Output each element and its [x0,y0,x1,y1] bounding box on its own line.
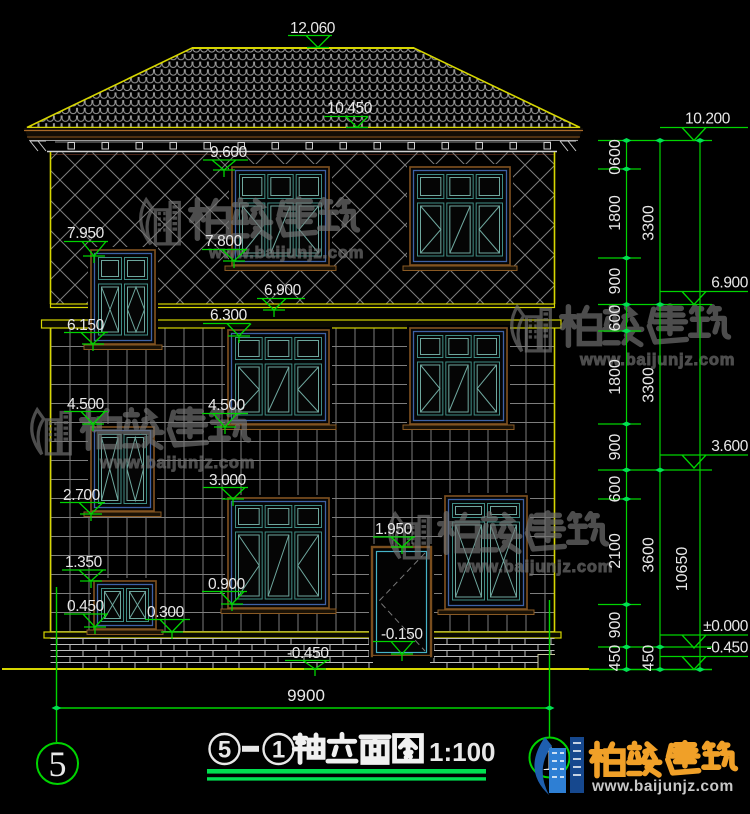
svg-text:www.baijunjz.com: www.baijunjz.com [99,454,255,472]
svg-text:12.060: 12.060 [290,20,336,37]
svg-text:5: 5 [218,737,231,764]
svg-text:600: 600 [607,476,624,503]
svg-text:900: 900 [607,612,624,639]
svg-text:4.500: 4.500 [208,397,246,414]
svg-text:10650: 10650 [674,547,691,592]
svg-text:450: 450 [607,645,624,672]
svg-text:9900: 9900 [287,686,325,705]
svg-text:1: 1 [272,737,285,764]
svg-text:450: 450 [641,645,658,672]
svg-text:3300: 3300 [641,205,658,241]
svg-text:3300: 3300 [641,367,658,403]
svg-text:10.450: 10.450 [327,100,373,117]
svg-text:2.700: 2.700 [63,487,101,504]
svg-text:www.baijunjz.com: www.baijunjz.com [591,778,734,795]
svg-text:900: 900 [607,268,624,295]
svg-text:1:100: 1:100 [429,737,496,767]
svg-text:3.600: 3.600 [711,438,749,455]
svg-text:6.900: 6.900 [711,275,749,292]
svg-text:6.150: 6.150 [67,317,105,334]
svg-text:7.800: 7.800 [205,233,243,250]
svg-text:±0.000: ±0.000 [703,618,749,635]
svg-text:0600: 0600 [607,139,624,175]
svg-text:3.000: 3.000 [209,472,247,489]
svg-text:10.200: 10.200 [685,111,731,128]
svg-text:1800: 1800 [607,195,624,231]
svg-text:-0.450: -0.450 [287,645,329,662]
svg-text:www.baijunjz.com: www.baijunjz.com [457,558,613,576]
svg-text:900: 900 [607,434,624,461]
svg-text:3600: 3600 [641,537,658,573]
svg-text:1.950: 1.950 [375,521,413,538]
svg-text:-0.150: -0.150 [381,626,423,643]
svg-text:0.450: 0.450 [67,598,105,615]
svg-text:5: 5 [49,744,67,784]
svg-text:www.baijunjz.com: www.baijunjz.com [579,351,735,369]
svg-text:0.300: 0.300 [147,604,185,621]
svg-text:-0.450: -0.450 [706,640,748,657]
svg-text:2100: 2100 [607,533,624,569]
svg-text:0.900: 0.900 [208,576,246,593]
svg-text:1800: 1800 [607,359,624,395]
svg-text:600: 600 [607,305,624,332]
svg-text:7.950: 7.950 [67,225,105,242]
svg-text:9.600: 9.600 [210,144,248,161]
svg-text:6.900: 6.900 [264,282,302,299]
svg-text:6.300: 6.300 [210,307,248,324]
svg-text:1.350: 1.350 [65,554,103,571]
svg-text:4.500: 4.500 [67,396,105,413]
